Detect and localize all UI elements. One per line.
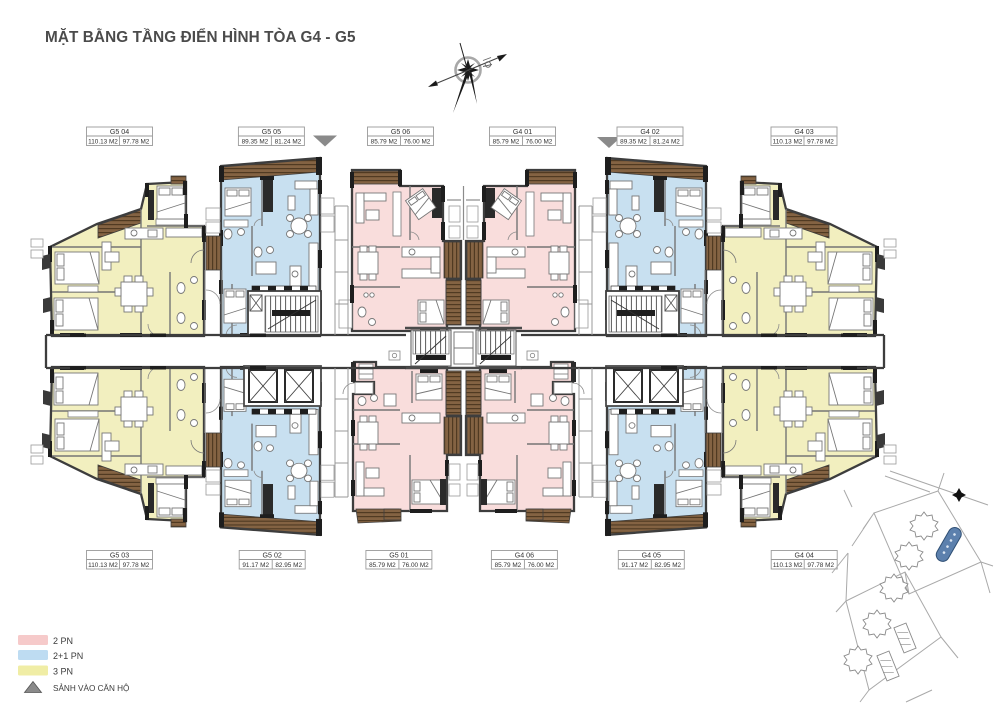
svg-text:G4 03: G4 03 [794,128,813,136]
svg-text:G4 02: G4 02 [640,128,659,136]
svg-text:G4 06: G4 06 [515,552,534,560]
svg-text:2+1 PN: 2+1 PN [53,651,83,661]
svg-text:G5 03: G5 03 [110,552,129,560]
svg-text:MẶT BẰNG TẦNG ĐIỂN HÌNH TÒA G4: MẶT BẰNG TẦNG ĐIỂN HÌNH TÒA G4 - G5 [45,28,356,46]
svg-text:97.78 M2: 97.78 M2 [807,138,834,145]
svg-text:85.79 M2: 85.79 M2 [493,138,520,145]
svg-text:91.17 M2: 91.17 M2 [621,562,648,569]
svg-text:2 PN: 2 PN [53,636,73,646]
svg-text:76.00 M2: 76.00 M2 [528,562,555,569]
svg-text:SẢNH VÀO CĂN HỘ: SẢNH VÀO CĂN HỘ [53,682,129,693]
svg-text:110.13 M2: 110.13 M2 [88,562,118,569]
svg-text:97.78 M2: 97.78 M2 [123,138,150,145]
svg-text:91.17 M2: 91.17 M2 [242,562,269,569]
svg-text:81.24 M2: 81.24 M2 [275,138,302,145]
svg-text:85.79 M2: 85.79 M2 [495,562,522,569]
svg-text:82.95 M2: 82.95 M2 [275,562,302,569]
svg-text:76.00 M2: 76.00 M2 [526,138,553,145]
svg-text:76.00 M2: 76.00 M2 [404,138,431,145]
svg-text:89.35 M2: 89.35 M2 [620,138,647,145]
svg-text:110.13 M2: 110.13 M2 [773,562,803,569]
svg-text:G4 04: G4 04 [795,552,814,560]
svg-text:81.24 M2: 81.24 M2 [653,138,680,145]
svg-text:82.95 M2: 82.95 M2 [654,562,681,569]
svg-text:97.78 M2: 97.78 M2 [807,562,834,569]
svg-text:G5 01: G5 01 [389,552,408,560]
svg-text:89.35 M2: 89.35 M2 [242,138,269,145]
svg-text:G5 02: G5 02 [263,552,282,560]
svg-text:110.13 M2: 110.13 M2 [773,138,803,145]
svg-text:G4 05: G4 05 [642,552,661,560]
svg-text:G5 06: G5 06 [391,128,410,136]
svg-text:97.78 M2: 97.78 M2 [123,562,150,569]
svg-text:76.00 M2: 76.00 M2 [402,562,429,569]
svg-text:85.79 M2: 85.79 M2 [369,562,396,569]
svg-text:3 PN: 3 PN [53,667,73,677]
svg-text:G4 01: G4 01 [513,128,532,136]
svg-text:G5 04: G5 04 [110,128,129,136]
svg-text:110.13 M2: 110.13 M2 [88,138,118,145]
svg-text:85.79 M2: 85.79 M2 [371,138,398,145]
svg-text:G5 05: G5 05 [262,128,281,136]
